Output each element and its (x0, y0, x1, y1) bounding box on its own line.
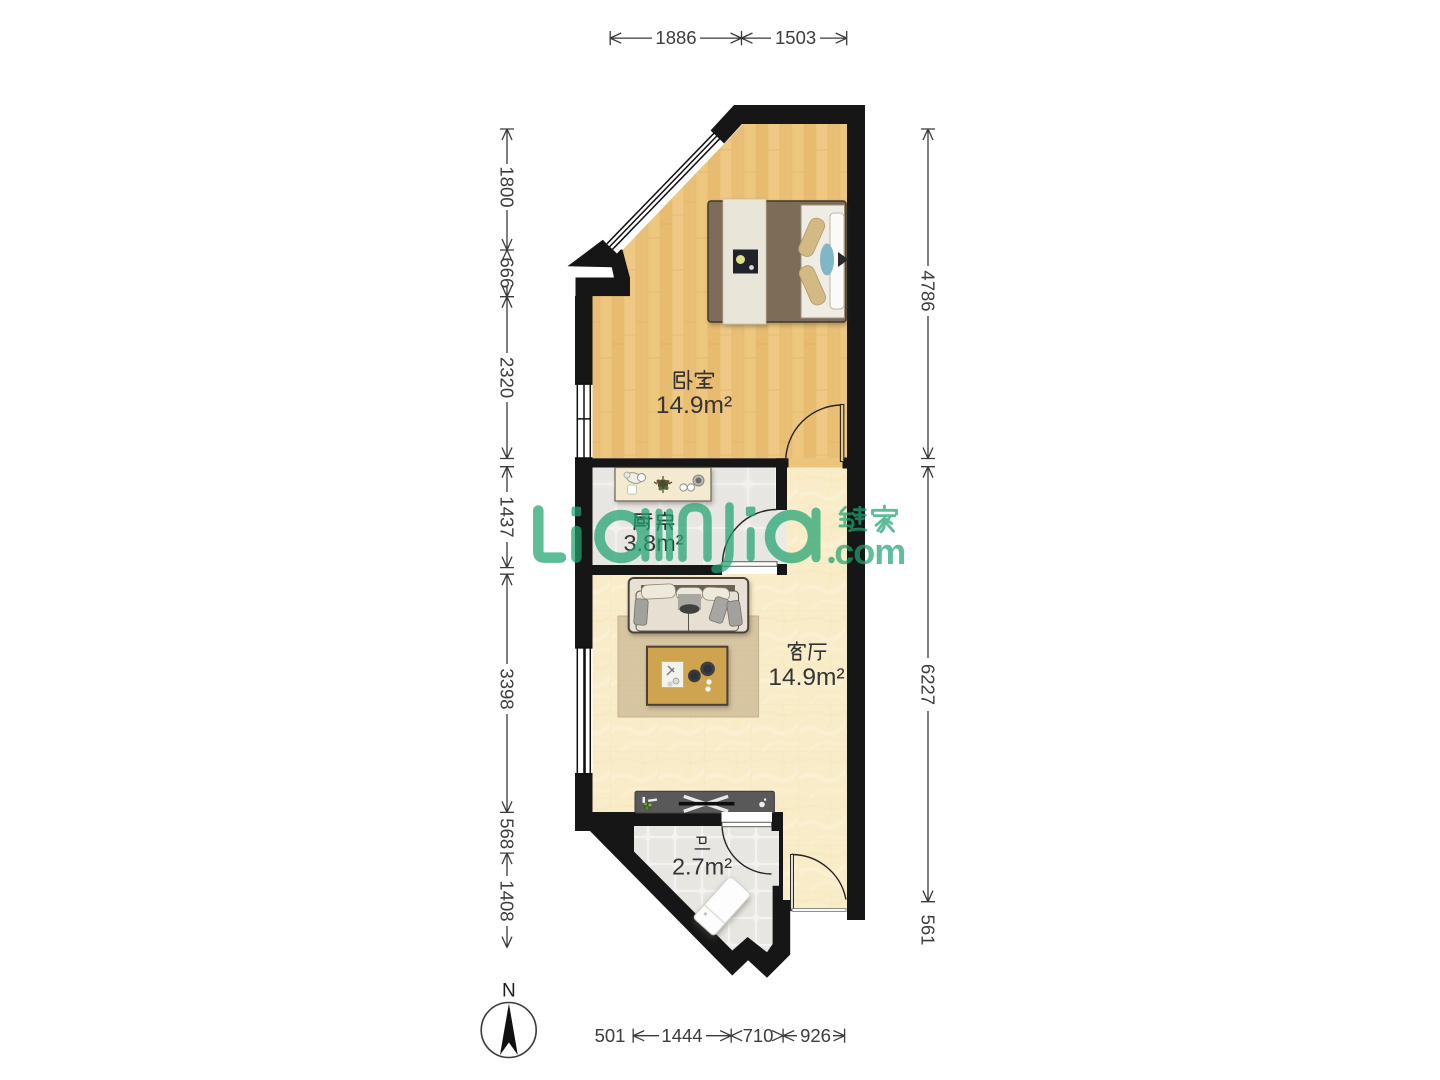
svg-text:561: 561 (918, 915, 939, 946)
svg-text:N: N (502, 981, 516, 1002)
svg-text:1408: 1408 (497, 880, 518, 921)
svg-text:2320: 2320 (497, 357, 518, 398)
svg-text:1800: 1800 (497, 166, 518, 207)
svg-text:666: 666 (497, 257, 518, 288)
svg-text:14.9m²: 14.9m² (768, 664, 844, 691)
svg-text:1444: 1444 (661, 1025, 702, 1046)
svg-text:6227: 6227 (918, 664, 939, 705)
svg-text:1437: 1437 (497, 496, 518, 537)
svg-text:4786: 4786 (918, 270, 939, 311)
svg-text:2.7m²: 2.7m² (672, 853, 732, 879)
svg-text:3398: 3398 (497, 668, 518, 709)
svg-text:710: 710 (743, 1025, 774, 1046)
svg-text:com: com (834, 531, 905, 572)
svg-text:568: 568 (497, 818, 518, 849)
svg-text:501: 501 (595, 1025, 626, 1046)
svg-text:1503: 1503 (775, 27, 816, 48)
svg-text:926: 926 (800, 1025, 831, 1046)
svg-text:1886: 1886 (655, 27, 696, 48)
svg-text:14.9m²: 14.9m² (656, 392, 732, 419)
